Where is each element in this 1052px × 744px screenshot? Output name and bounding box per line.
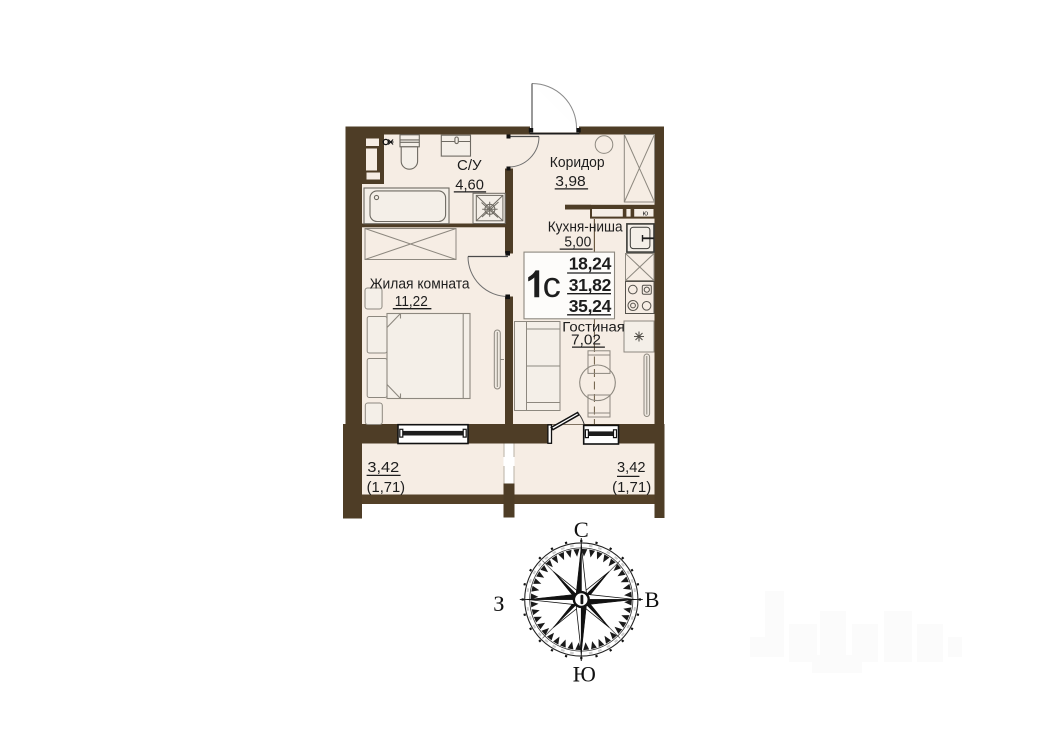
- svg-text:Жилая комната: Жилая комната: [370, 276, 470, 292]
- svg-text:с: с: [543, 264, 561, 305]
- svg-text:Ю: Ю: [573, 662, 596, 687]
- svg-text:(1,71): (1,71): [367, 480, 406, 496]
- svg-text:3,98: 3,98: [555, 174, 585, 190]
- svg-text:(1,71): (1,71): [612, 480, 651, 496]
- svg-text:В: В: [644, 587, 659, 612]
- svg-text:З: З: [493, 591, 504, 616]
- svg-text:ю: ю: [643, 209, 649, 218]
- svg-text:11,22: 11,22: [395, 294, 428, 310]
- svg-text:31,82: 31,82: [569, 275, 612, 295]
- svg-text:35,24: 35,24: [569, 296, 612, 316]
- svg-text:Коридор: Коридор: [550, 154, 605, 171]
- svg-text:3,42: 3,42: [367, 460, 399, 476]
- svg-text:Кухня-ниша: Кухня-ниша: [548, 218, 623, 235]
- svg-text:3,42: 3,42: [617, 460, 646, 476]
- svg-text:С/У: С/У: [457, 157, 482, 174]
- svg-text:4,60: 4,60: [455, 177, 484, 193]
- svg-text:5,00: 5,00: [564, 234, 591, 250]
- svg-text:7,02: 7,02: [571, 332, 601, 348]
- svg-text:С: С: [574, 517, 589, 542]
- svg-text:18,24: 18,24: [569, 253, 612, 273]
